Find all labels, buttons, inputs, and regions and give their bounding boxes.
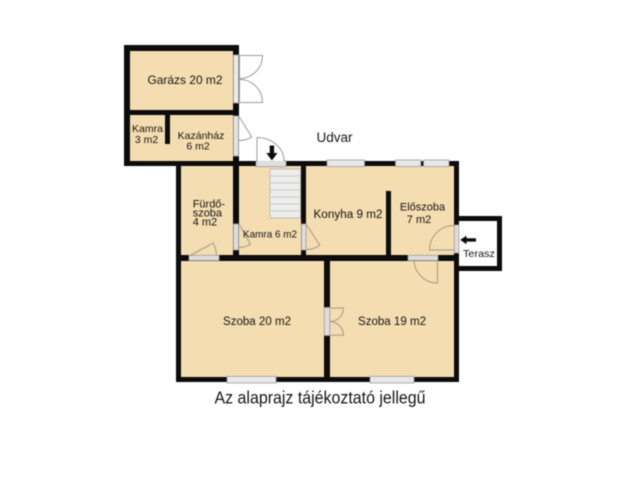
svg-text:Kamra 6 m2: Kamra 6 m2 xyxy=(243,229,297,241)
svg-text:4 m2: 4 m2 xyxy=(193,217,217,229)
svg-text:Konyha 9 m2: Konyha 9 m2 xyxy=(314,209,383,221)
svg-text:7 m2: 7 m2 xyxy=(407,214,431,226)
svg-text:Garázs 20 m2: Garázs 20 m2 xyxy=(148,73,223,87)
svg-text:Szoba 19 m2: Szoba 19 m2 xyxy=(358,316,426,328)
svg-text:6 m2: 6 m2 xyxy=(186,141,210,153)
svg-text:Az alaprajz tájékoztató jelleg: Az alaprajz tájékoztató jellegű xyxy=(215,388,426,408)
svg-text:Előszoba: Előszoba xyxy=(400,202,446,214)
svg-text:Udvar: Udvar xyxy=(316,130,353,145)
svg-text:3 m2: 3 m2 xyxy=(135,134,159,146)
svg-text:Terasz: Terasz xyxy=(463,248,495,260)
svg-text:Szoba 20 m2: Szoba 20 m2 xyxy=(223,316,291,328)
